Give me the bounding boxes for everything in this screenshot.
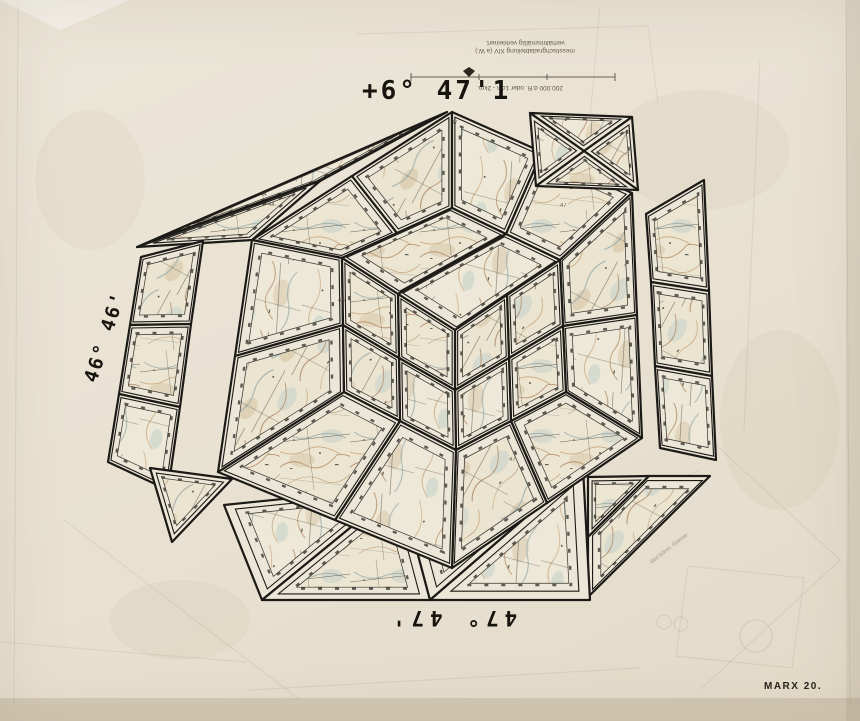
artwork-photo: 444447474746 messtischgradabteilung XIV … (0, 0, 860, 721)
margin-number: 44 (268, 202, 275, 208)
map-panel (655, 366, 716, 460)
map-panel (651, 282, 712, 376)
margin-number: 44 (260, 192, 267, 198)
map-panel (130, 241, 203, 325)
top-coordinate-label: +6° 47'1 (362, 76, 511, 106)
map-panel (646, 180, 709, 291)
legend-line-2: verhältnismäßig verkleinert. (436, 38, 614, 46)
legend-line-1: messtischgradabteilung XIV (a W.) (436, 46, 614, 54)
map-panel (119, 324, 191, 407)
artist-signature: MARX 20. (764, 681, 822, 692)
margin-number: 47 (509, 457, 516, 463)
map-legend-block: messtischgradabteilung XIV (a W.) verhäl… (436, 38, 614, 54)
margin-number: 47 (560, 203, 567, 209)
margin-number: 46 (338, 298, 345, 304)
margin-number: 47 (451, 120, 458, 126)
bottom-coordinate-label: 47° 47' (372, 606, 532, 630)
map-panel (150, 468, 232, 542)
